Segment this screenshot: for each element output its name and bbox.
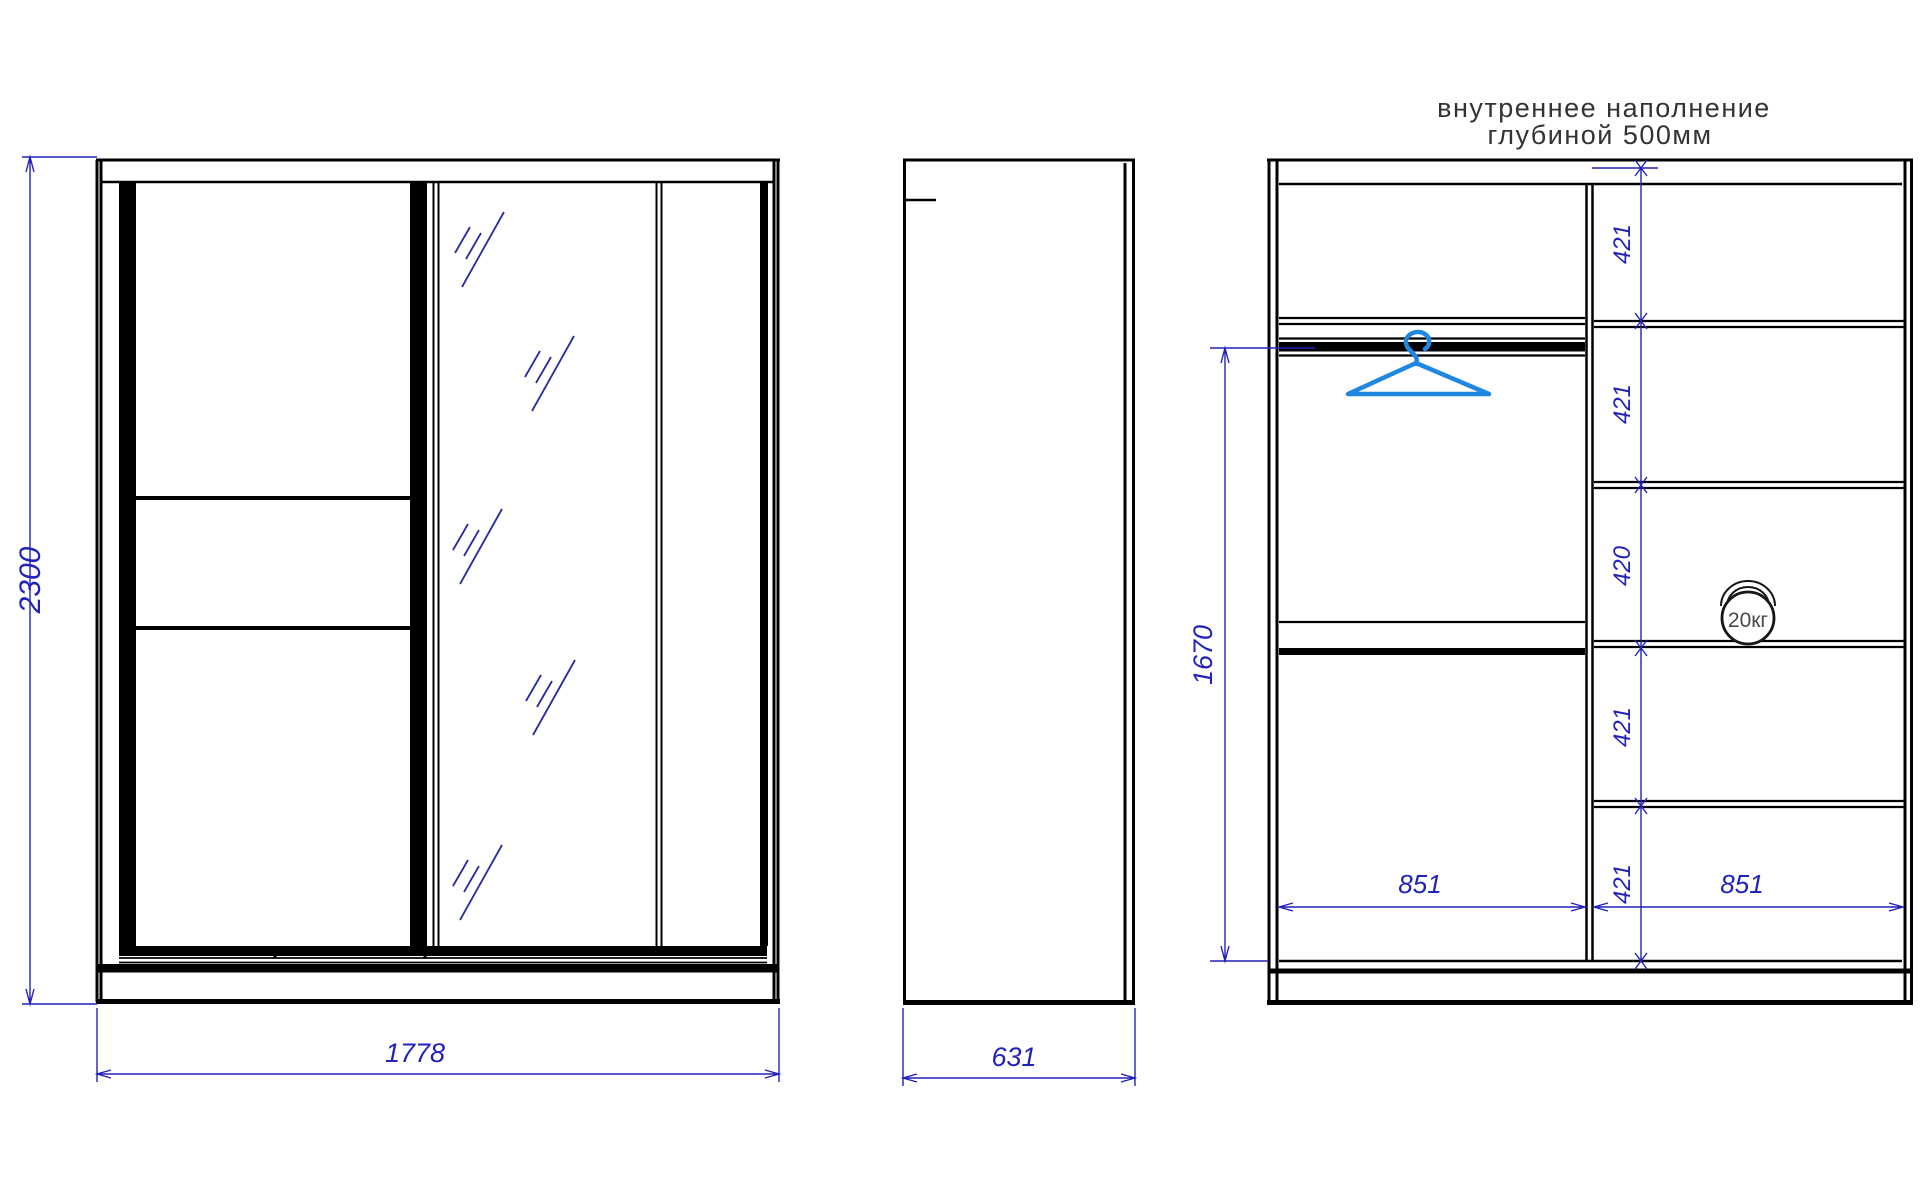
- internal-partition-and-floor: [1279, 184, 1902, 961]
- dim-gap-4-label: 421: [1609, 707, 1636, 747]
- dim-height-label: 2300: [14, 546, 47, 614]
- side-view: [903, 160, 1135, 1003]
- left-door-right-stile: [410, 182, 427, 946]
- left-door-left-stile: [119, 182, 136, 946]
- internal-view: 20кг: [1267, 160, 1913, 1003]
- title-line-2: глубиной 500мм: [1487, 120, 1712, 150]
- dim-left-section-label: 851: [1398, 869, 1441, 899]
- dim-gap-1-label: 421: [1609, 224, 1636, 264]
- dim-gap-3-label: 420: [1609, 545, 1636, 586]
- dim-gap-5-label: 421: [1609, 864, 1636, 904]
- dim-width-label: 1778: [385, 1038, 445, 1068]
- hanger-icon: [1348, 332, 1489, 394]
- dim-right-section-label: 851: [1720, 869, 1763, 899]
- right-door-stile: [760, 182, 768, 946]
- front-bottom-track: [119, 958, 767, 963]
- kettlebell-icon: 20кг: [1722, 584, 1774, 644]
- drawing-canvas: 20кг 2300 1778 631 1670 851 851 421 421 …: [0, 0, 1922, 1186]
- left-door-panel-dividers: [136, 498, 410, 628]
- dim-depth-label: 631: [991, 1042, 1036, 1072]
- dim-line-left-section: [1279, 903, 1585, 911]
- title-line-1: внутреннее наполнение: [1437, 93, 1771, 123]
- dim-rod-height-label: 1670: [1188, 625, 1218, 685]
- drawing-title: внутреннее наполнение глубиной 500мм: [1437, 93, 1771, 150]
- internal-bottom: [1267, 971, 1913, 1003]
- left-section-divider: [1279, 648, 1585, 655]
- dim-gap-2-label: 421: [1609, 384, 1636, 424]
- kettlebell-weight-label: 20кг: [1728, 609, 1769, 632]
- front-bottom-panel: [97, 964, 778, 973]
- hanging-rod: [1279, 342, 1585, 352]
- mirror-hatch-icon: [453, 212, 575, 920]
- mirror-door-stiles: [434, 182, 662, 946]
- door-bottom-rail: [119, 946, 767, 956]
- side-outline: [903, 160, 1135, 1001]
- internal-carcass-outline: [1267, 160, 1913, 1002]
- wardrobe-technical-drawing: 20кг 2300 1778 631 1670 851 851 421 421 …: [0, 0, 1922, 1186]
- left-section-shelf-lines: [1279, 318, 1585, 622]
- front-view: [96, 160, 780, 1002]
